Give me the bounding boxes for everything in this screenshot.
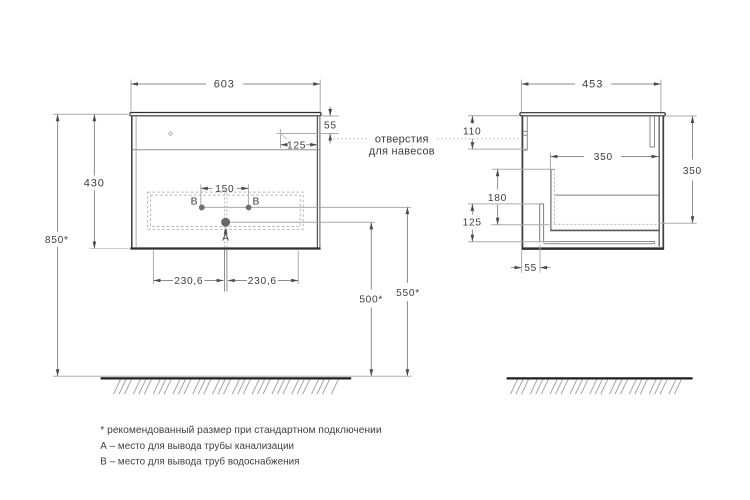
svg-text:для навесов: для навесов [369,145,435,157]
svg-text:* рекомендованный размер при с: * рекомендованный размер при стандартном… [100,425,381,436]
svg-text:B: B [252,197,259,208]
svg-text:230,6: 230,6 [248,276,277,287]
svg-text:В – место для вывода труб водо: В – место для вывода труб водоснабжения [100,457,299,468]
svg-text:230,6: 230,6 [174,276,203,287]
svg-text:отверстия: отверстия [375,133,429,145]
svg-text:55: 55 [524,263,537,274]
svg-text:А – место для вывода трубы кан: А – место для вывода трубы канализации [100,441,294,452]
svg-text:110: 110 [463,127,481,138]
svg-text:125: 125 [287,140,306,151]
svg-text:500*: 500* [359,294,383,305]
svg-text:A: A [222,233,229,244]
svg-text:603: 603 [214,79,235,91]
svg-text:453: 453 [582,79,603,91]
svg-text:125: 125 [463,218,482,229]
svg-text:850*: 850* [45,235,69,246]
svg-text:550*: 550* [396,288,420,299]
svg-text:350: 350 [683,166,702,177]
svg-text:430: 430 [84,177,105,189]
svg-text:350: 350 [594,152,613,163]
svg-text:B: B [191,197,198,208]
svg-text:55: 55 [324,120,337,131]
svg-text:180: 180 [488,193,507,204]
